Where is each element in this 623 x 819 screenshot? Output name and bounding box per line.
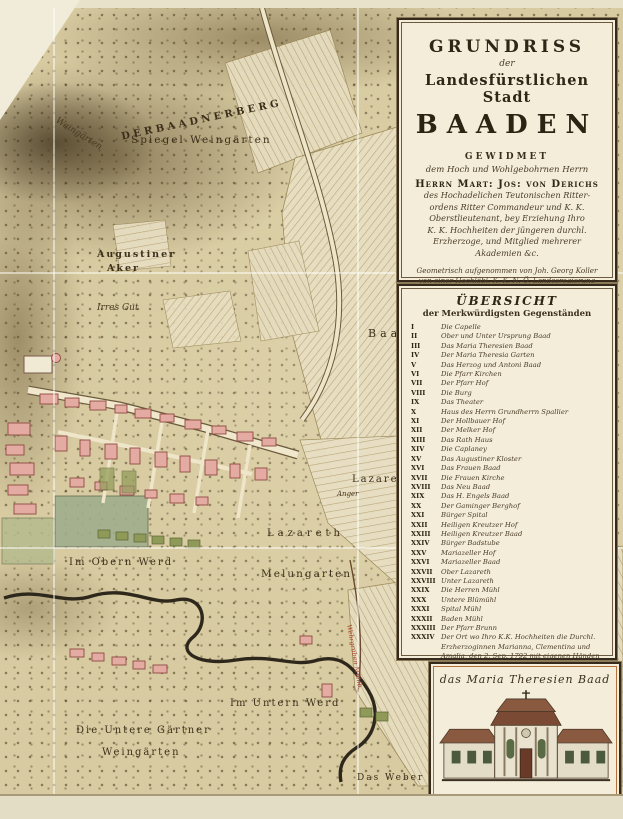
legend-item-numeral: XXV [407, 549, 441, 558]
legend-item-numeral: XXI [407, 511, 441, 520]
dedication-line: K. K. Hochheiten der jüngeren durchl. [410, 225, 604, 237]
dedication-heading: GEWIDMET [410, 152, 604, 162]
legend-item-label: Die Frauen Kirche [441, 474, 504, 483]
legend-item-label: Die Burg [441, 389, 472, 398]
map-label-im-untern-werd: Im Untern Werd [230, 699, 340, 709]
legend-item: III Das Maria Theresien Baad [407, 342, 607, 351]
meadow-block-2 [2, 518, 54, 564]
map-title: GRUNDRISS [410, 37, 604, 57]
legend-item-label: Unter Lazareth [441, 577, 494, 586]
legend-item-label: Das Maria Theresien Baad [441, 342, 533, 351]
legend-item-numeral: IV [407, 351, 441, 360]
legend-item-label: Das Herzog und Antoni Baad [441, 361, 541, 370]
illustration-panel: das Maria Theresien Baad [429, 662, 621, 804]
legend-item-numeral: XX [407, 502, 441, 511]
legend-item: I Die Capelle [407, 323, 607, 332]
dedication-line: ordens Ritter Commandeur und K. K. [410, 202, 604, 214]
legend-item-numeral: XXXIII [407, 624, 441, 633]
street-cross-4 [238, 445, 250, 518]
legend-item-label: Der Hollbauer Hof [441, 417, 505, 426]
map-label-lazareth: Lazareth [267, 529, 344, 539]
legend-item-label: Spital Mühl [441, 605, 481, 614]
legend-item: VIII Die Burg [407, 389, 607, 398]
legend-item-label: Baden Mühl [441, 615, 483, 624]
legend-item-numeral: VIII [407, 389, 441, 398]
legend-item: XI Der Hollbauer Hof [407, 417, 607, 426]
legend-item: II Ober und Unter Ursprung Baad [407, 332, 607, 341]
legend-item: XVI Das Frauen Baad [407, 464, 607, 473]
legend-item-numeral: XII [407, 426, 441, 435]
legend-item-label: Mariazeller Hof [441, 549, 495, 558]
legend-item-label: Untere Blümühl [441, 596, 496, 605]
legend-item: XXXIII Der Pfarr Brunn [407, 624, 607, 633]
legend-item-label: Der Melker Hof [441, 426, 495, 435]
legend-item-numeral: IX [407, 398, 441, 407]
map-label-augustiner-aker: Aker [107, 264, 140, 274]
legend-item-numeral: V [407, 361, 441, 370]
legend-subheading: der Merkwürdigsten Gegenständen [407, 309, 607, 319]
legend-item: XXIV Bürger Badstube [407, 539, 607, 548]
legend-item-label: Bürger Badstube [441, 539, 500, 548]
legend-item: XVIII Das Neu Baad [407, 483, 607, 492]
legend-item-numeral: XIV [407, 445, 441, 454]
legend-item: V Das Herzog und Antoni Baad [407, 361, 607, 370]
bathhouse-illustration [438, 686, 614, 794]
map-label-spiegel-weingarten: Spiegel Weingärten [131, 135, 272, 146]
legend-item-label: Der Maria Theresia Garten [441, 351, 534, 360]
legend-item-numeral: III [407, 342, 441, 351]
map-label-melungarten: Melungarten [261, 569, 352, 580]
legend-item-label: Der Pfarr Hof [441, 379, 488, 388]
map-sheet: D E R B A A D N E R B E R G Spiegel Wein… [0, 0, 623, 819]
legend-item: XXVI Mariazeller Baad [407, 558, 607, 567]
legend-item: XXXI Spital Mühl [407, 605, 607, 614]
legend-item-label: Das Augustiner Kloster [441, 455, 521, 464]
legend-item: XII Der Melker Hof [407, 426, 607, 435]
legend-item-label: Haus des Herrn Grundherrn Spallier [441, 408, 568, 417]
map-label-untere-weingarten-2: Weingärten [102, 748, 181, 758]
legend-item-numeral: XVII [407, 474, 441, 483]
legend-item: XXVIII Unter Lazareth [407, 577, 607, 586]
map-label-untere-weingarten-1: Die Untere Gärtner [76, 726, 211, 736]
legend-item: XV Das Augustiner Kloster [407, 455, 607, 464]
imprint-line: Geometrisch aufgenommen von Joh. Georg K… [410, 266, 604, 276]
title-cartouche: GRUNDRISS der Landesfürstlichen Stadt BA… [397, 18, 617, 282]
legend-item-numeral: XXVI [407, 558, 441, 567]
legend-item: XIII Das Rath Haus [407, 436, 607, 445]
legend-item: XIV Die Caplaney [407, 445, 607, 454]
title-stadt: Landesfürstlichen Stadt [410, 72, 604, 106]
dedication-line: Erzherzoge, und Mitglied mehrerer [410, 236, 604, 248]
legend-item-label: Die Caplaney [441, 445, 487, 454]
dedication-line: des Hochadelichen Teutonischen Ritter- [410, 190, 604, 202]
legend-item-numeral: XXVII [407, 568, 441, 577]
legend-item-label: Das H. Engels Baad [441, 492, 509, 501]
legend-item: XXIII Heiligen Kreutzer Baad [407, 530, 607, 539]
legend-item-numeral: XXIX [407, 586, 441, 595]
legend-item-numeral: XXIV [407, 539, 441, 548]
legend-item-label: Die Capelle [441, 323, 481, 332]
legend-list: I Die Capelle II Ober und Unter Ursprung… [407, 323, 607, 671]
legend-heading: ÜBERSICHT [407, 294, 607, 308]
legend-item-numeral: XXXI [407, 605, 441, 614]
legend-item: VII Der Pfarr Hof [407, 379, 607, 388]
legend-item-numeral: XVIII [407, 483, 441, 492]
legend-item-label: Das Rath Haus [441, 436, 493, 445]
legend-item-numeral: XXX [407, 596, 441, 605]
legend-item-label: Der Pfarr Brunn [441, 624, 497, 633]
legend-item: XXX Untere Blümühl [407, 596, 607, 605]
legend-item-numeral: XV [407, 455, 441, 464]
legend-item-numeral: VII [407, 379, 441, 388]
dedication-lines: des Hochadelichen Teutonischen Ritter-or… [410, 190, 604, 259]
legend-item: XXIX Die Herren Mühl [407, 586, 607, 595]
legend-item-numeral: XXII [407, 521, 441, 530]
legend-item: XXII Heiligen Kreutzer Hof [407, 521, 607, 530]
river-schwechat [4, 593, 375, 782]
legend-item-label: Das Neu Baad [441, 483, 490, 492]
legend-item-label: Das Frauen Baad [441, 464, 501, 473]
legend-item-numeral: XXVIII [407, 577, 441, 586]
legend-item-label: Die Pfarr Kirchen [441, 370, 502, 379]
fold-crease-vertical-left [53, 8, 55, 794]
legend-item-numeral: XIX [407, 492, 441, 501]
legend-item-label: Heiligen Kreutzer Hof [441, 521, 517, 530]
legend-item: XIX Das H. Engels Baad [407, 492, 607, 501]
legend-item-label: Bürger Spital [441, 511, 488, 520]
legend-item-numeral: XXXIV [407, 633, 441, 642]
map-label-im-obern-werd: Im Obern Werd [69, 558, 173, 568]
map-label-augustiner: Augustiner [97, 250, 176, 260]
kloster-block [24, 356, 52, 373]
dedication-sub: dem Hoch und Wohlgebohrnen Herrn [410, 165, 604, 175]
title-der: der [410, 59, 604, 69]
legend-item-numeral: XIII [407, 436, 441, 445]
legend-item-label: Das Theater [441, 398, 483, 407]
legend-item-numeral: XXIII [407, 530, 441, 539]
map-label-irres-gut: Irres Gut [97, 304, 139, 313]
legend-item: IX Das Theater [407, 398, 607, 407]
paper-margin-bottom [0, 794, 623, 819]
legend-item-numeral: I [407, 323, 441, 332]
dedication-line: Oberstlieutenant, bey Erziehung Ihro [410, 213, 604, 225]
legend-item-numeral: II [407, 332, 441, 341]
legend-item-numeral: VI [407, 370, 441, 379]
small-parcel-2 [163, 291, 241, 348]
legend-item-numeral: X [407, 408, 441, 417]
legend-item: IV Der Maria Theresia Garten [407, 351, 607, 360]
map-label-anger: Anger [337, 491, 359, 498]
title-baaden: BAADEN [410, 110, 604, 140]
dedication-line: Akademien &c. [410, 248, 604, 260]
legend-item: VI Die Pfarr Kirchen [407, 370, 607, 379]
legend-item-label: Die Herren Mühl [441, 586, 500, 595]
legend-item-label: Ober und Unter Ursprung Baad [441, 332, 551, 341]
legend-item: X Haus des Herrn Grundherrn Spallier [407, 408, 607, 417]
legend-item: XXXII Baden Mühl [407, 615, 607, 624]
legend-item-label: Mariazeller Baad [441, 558, 500, 567]
legend-item-label: Der Gaminger Berghof [441, 502, 520, 511]
illustration-caption: das Maria Theresien Baad [438, 673, 612, 686]
legend-item-numeral: XI [407, 417, 441, 426]
legend-item: XVII Die Frauen Kirche [407, 474, 607, 483]
legend-item: XX Der Gaminger Berghof [407, 502, 607, 511]
legend-item-numeral: XXXII [407, 615, 441, 624]
legend-item: XXI Bürger Spital [407, 511, 607, 520]
legend-item: XXV Mariazeller Hof [407, 549, 607, 558]
legend-item-label: Heiligen Kreutzer Baad [441, 530, 522, 539]
dedication-name: Herrn Mart: Jos: von Derichs [410, 179, 604, 190]
legend-item-numeral: XVI [407, 464, 441, 473]
legend-panel: ÜBERSICHT der Merkwürdigsten Gegenstände… [397, 284, 617, 660]
legend-item-label: Ober Lazareth [441, 568, 491, 577]
legend-item: XXVII Ober Lazareth [407, 568, 607, 577]
